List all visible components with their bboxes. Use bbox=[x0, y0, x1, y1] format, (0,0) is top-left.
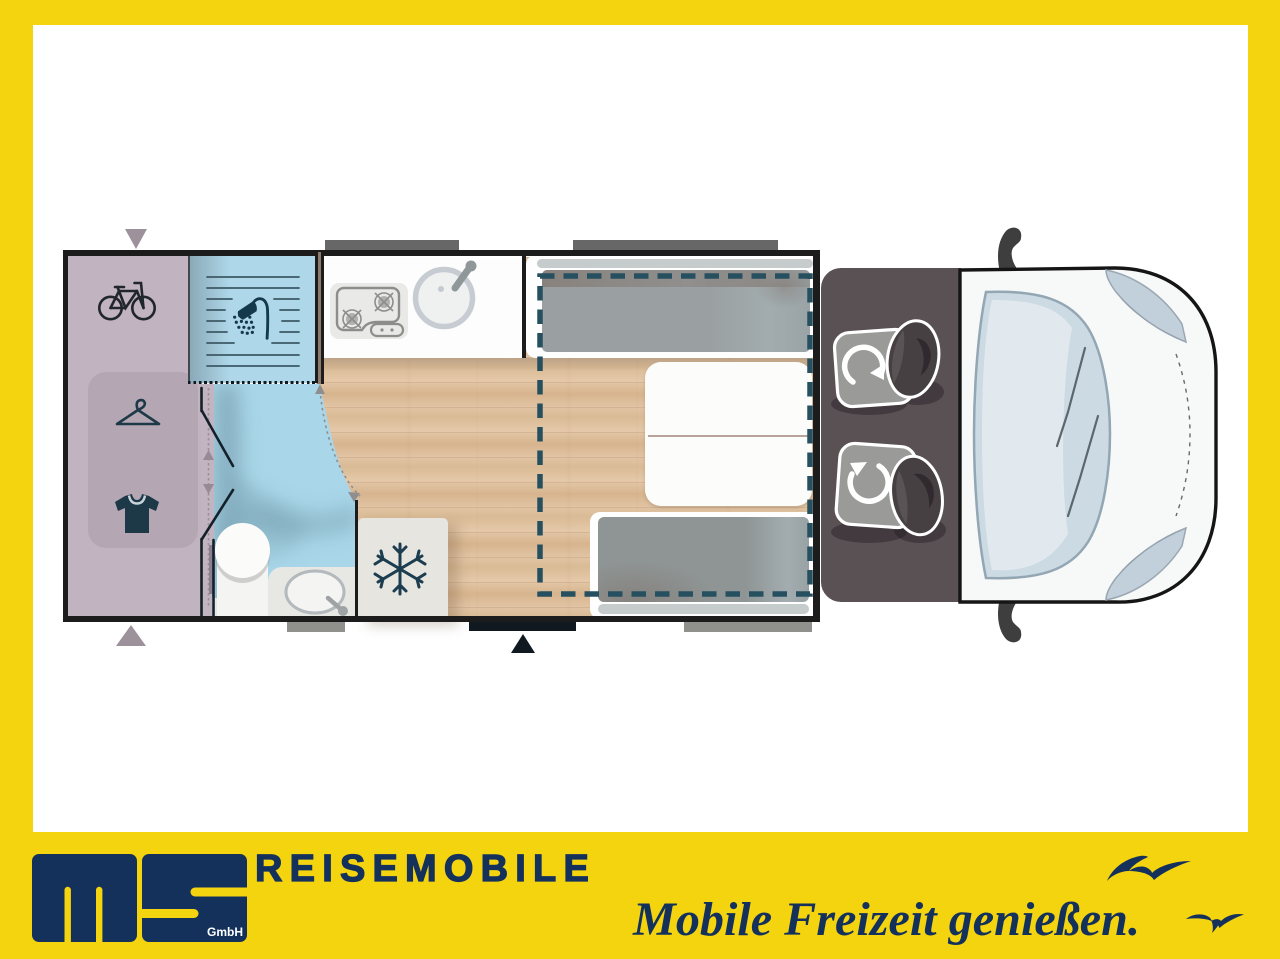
svg-text:GmbH: GmbH bbox=[207, 925, 243, 939]
svg-text:Mobile Freizeit genießen.: Mobile Freizeit genießen. bbox=[632, 893, 1140, 946]
